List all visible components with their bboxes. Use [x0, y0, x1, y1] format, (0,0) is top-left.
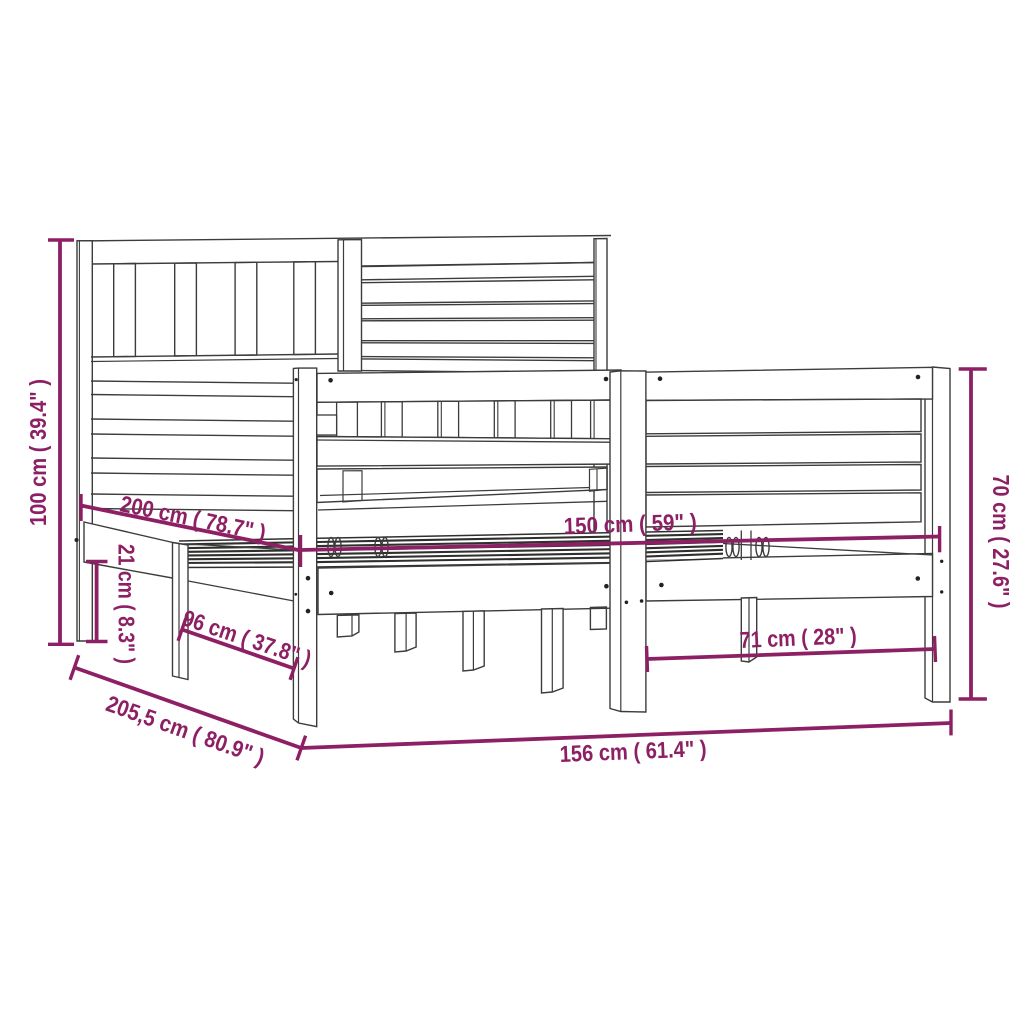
svg-text:71 cm ( 28" ): 71 cm ( 28" ): [739, 622, 857, 653]
svg-text:156 cm ( 61.4" ): 156 cm ( 61.4" ): [559, 735, 707, 767]
svg-text:100 cm ( 39.4" ): 100 cm ( 39.4" ): [25, 379, 51, 526]
svg-text:150 cm ( 59" ): 150 cm ( 59" ): [563, 508, 697, 539]
svg-text:205,5 cm ( 80.9" ): 205,5 cm ( 80.9" ): [103, 690, 268, 770]
svg-text:21 cm ( 8.3" ): 21 cm ( 8.3" ): [114, 544, 140, 664]
svg-text:70 cm ( 27.6" ): 70 cm ( 27.6" ): [988, 475, 1014, 609]
